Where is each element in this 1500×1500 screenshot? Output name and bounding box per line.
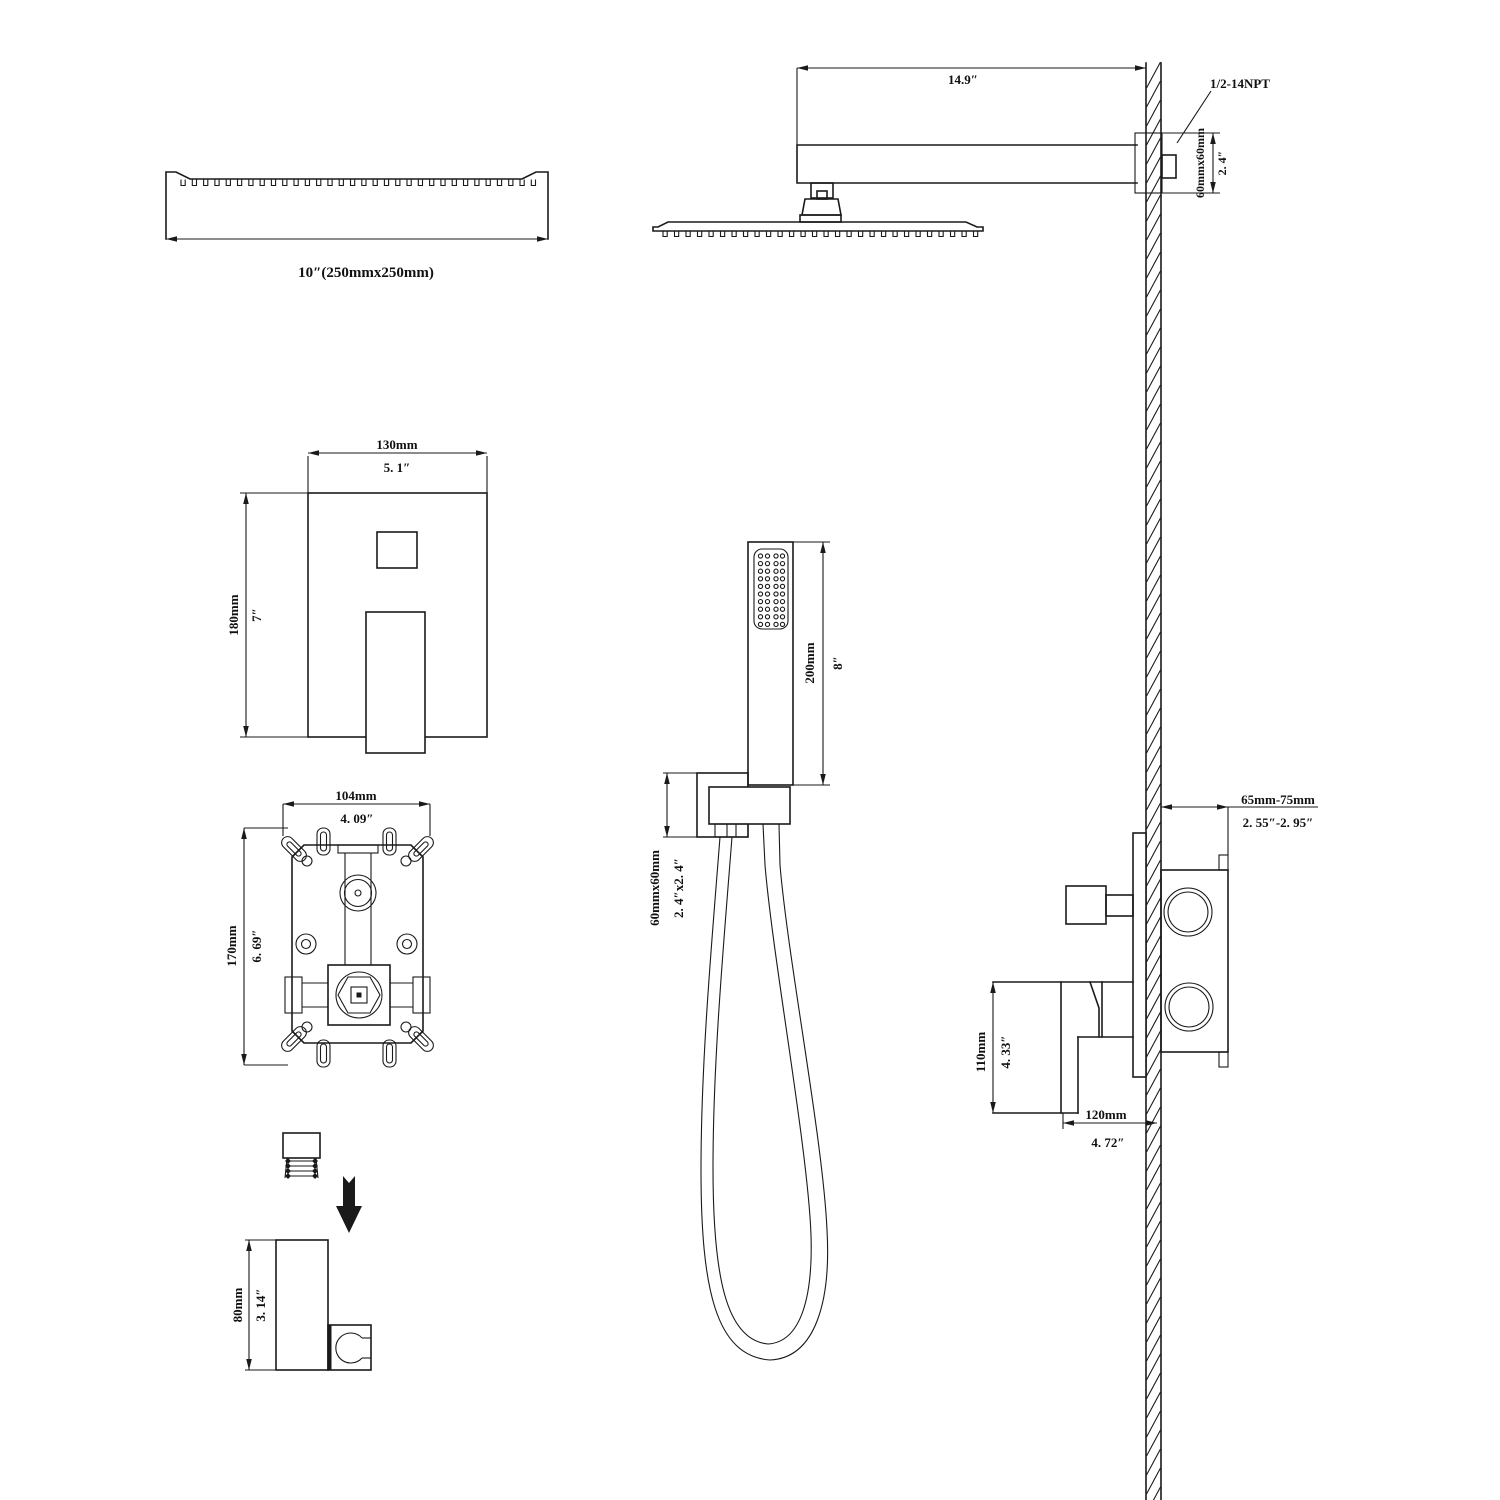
bracket-height-in-label: 3. 14″ <box>253 1288 268 1321</box>
threaded-plug <box>283 1133 320 1179</box>
head-size-label: 10″(250mmx250mm) <box>298 265 434 281</box>
hose-nut <box>715 824 748 837</box>
lever-handle-side <box>993 982 1133 1113</box>
supply-nipple <box>1162 155 1176 178</box>
wall-depth-mm-label: 65mm-75mm <box>1241 792 1315 807</box>
supply-port-lower <box>1165 983 1213 1031</box>
shower-system-dimension-diagram: 10″(250mmx250mm) 14.9″ 60mmx <box>0 0 1500 1500</box>
thread-ridges <box>285 1158 318 1179</box>
flange-size-mm-label: 60mmx60mm <box>1193 128 1207 198</box>
trim-plate-view: 130mm 5. 1″ 180mm 7″ <box>226 437 487 753</box>
wand-length-mm-label: 200mm <box>802 642 817 683</box>
diverter-knob-side <box>1066 886 1133 924</box>
head-top-view: 10″(250mmx250mm) <box>166 172 548 281</box>
valve-height-in-label: 6. 69″ <box>249 929 264 962</box>
bracket-height-mm-label: 80mm <box>230 1288 245 1323</box>
handle-depth-in-label: 4. 72″ <box>1091 1135 1124 1150</box>
arm-length-label: 14.9″ <box>948 72 978 87</box>
handle-height-in-label: 4. 33″ <box>998 1035 1013 1068</box>
plate-height-mm-label: 180mm <box>226 594 241 635</box>
hand-shower-view: 200mm 8″ 60mmx60mm 2. 4″x2. 4″ <box>647 542 845 1360</box>
valve-width-mm-label: 104mm <box>335 788 376 803</box>
screw-holes <box>296 856 417 1032</box>
wall-section <box>1146 62 1161 1500</box>
escutcheon-edge <box>1133 833 1146 1077</box>
wall-bracket <box>276 1240 371 1370</box>
bracket-detail-view: 80mm 3. 14″ <box>230 1133 371 1370</box>
technical-drawing-sheet: 10″(250mmx250mm) 14.9″ 60mmx <box>0 0 1500 1500</box>
thread-spec-label: 1/2-14NPT <box>1210 76 1270 91</box>
supply-port-upper <box>1164 888 1212 936</box>
wand-length-in-label: 8″ <box>830 656 845 670</box>
inwall-trim-plate <box>1161 855 1228 1067</box>
plate-width-in-label: 5. 1″ <box>384 460 411 475</box>
shower-head-plate <box>653 222 983 231</box>
valve-width-in-label: 4. 09″ <box>340 811 373 826</box>
handle-depth-mm-label: 120mm <box>1085 1107 1126 1122</box>
spray-face-dots <box>758 554 784 627</box>
wall-hatch-pattern <box>1147 62 1161 1500</box>
rough-in-valve-view: 104mm 4. 09″ 170mm 6. 69″ <box>224 788 436 1067</box>
shower-arm <box>797 145 1137 183</box>
holder-size-in-label: 2. 4″x2. 4″ <box>671 858 686 918</box>
valve-height-mm-label: 170mm <box>224 925 239 966</box>
diverter-button <box>377 532 417 568</box>
wall-depth-in-label: 2. 55″-2. 95″ <box>1243 815 1314 830</box>
down-arrow-icon <box>336 1176 362 1233</box>
spray-nozzles-row-side <box>663 231 978 237</box>
holder-cradle <box>709 787 790 824</box>
valve-cartridge <box>328 965 390 1025</box>
shower-hose <box>701 824 828 1360</box>
lever-handle <box>366 612 425 753</box>
holder-size-mm-label: 60mmx60mm <box>647 850 662 926</box>
spray-nozzles-row <box>181 180 536 186</box>
head-side-view: 14.9″ 60mmx60mm 2. 4″ 1/2-14NPT <box>653 62 1270 1500</box>
hand-shower-wand <box>748 542 793 785</box>
ball-joint <box>800 183 841 222</box>
flange-size-in-label: 2. 4″ <box>1215 151 1229 176</box>
plate-width-mm-label: 130mm <box>376 437 417 452</box>
top-port-flange <box>338 845 378 853</box>
plate-height-in-label: 7″ <box>249 608 264 622</box>
handle-height-mm-label: 110mm <box>973 1032 988 1073</box>
